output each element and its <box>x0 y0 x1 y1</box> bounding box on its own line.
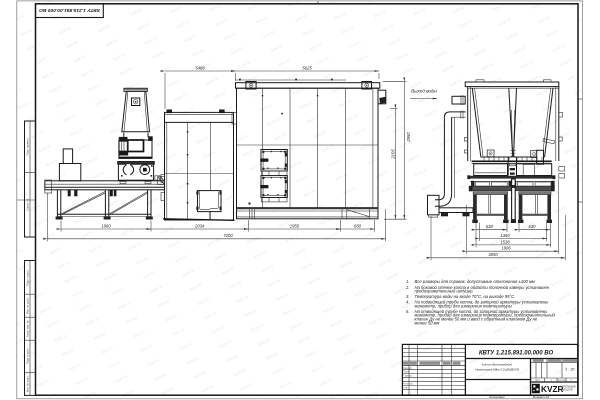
svg-text:Справ. №: Справ. № <box>25 198 29 210</box>
svg-text:Инв. № дубл.: Инв. № дубл. <box>25 297 29 314</box>
svg-text:Подп. и дата: Подп. и дата <box>25 270 29 286</box>
svg-text:Листов: Листов <box>558 379 566 382</box>
svg-text:1960: 1960 <box>101 223 111 228</box>
svg-text:Перв. примен.: Перв. примен. <box>25 138 29 156</box>
svg-text:Инв. № подл.: Инв. № подл. <box>25 375 29 392</box>
svg-text:Температура воды на входе 70°С: Температура воды на входе 70°С, на выход… <box>415 294 516 299</box>
svg-text:680: 680 <box>354 223 362 228</box>
svg-text:1.: 1. <box>406 279 410 284</box>
svg-text:манометр, прибор для измерения: манометр, прибор для измерения температу… <box>415 303 512 308</box>
svg-text:1538: 1538 <box>500 239 510 244</box>
svg-text:Взам. инв. №: Взам. инв. № <box>25 320 29 337</box>
svg-text:2105: 2105 <box>391 149 396 160</box>
svg-text:630: 630 <box>486 224 494 229</box>
svg-text:5625: 5625 <box>302 65 312 70</box>
svg-text:3050: 3050 <box>488 252 498 257</box>
svg-text:ЗАВОД РФ: ЗАВОД РФ <box>561 389 573 392</box>
svg-text:Т.контр.: Т.контр. <box>403 374 413 378</box>
svg-text:Копировал: Копировал <box>490 395 505 399</box>
svg-text:1 : 20: 1 : 20 <box>565 368 575 372</box>
svg-text:Выход воды: Выход воды <box>411 89 437 94</box>
svg-text:1360: 1360 <box>500 233 510 238</box>
svg-text:7200: 7200 <box>223 233 233 238</box>
svg-text:2034: 2034 <box>194 223 205 228</box>
svg-text:Формат А2: Формат А2 <box>533 395 550 399</box>
svg-text:630: 630 <box>529 224 537 229</box>
svg-text:Н.контр.: Н.контр. <box>403 382 413 386</box>
svg-text:предохранительный штуцер.: предохранительный штуцер. <box>415 288 474 293</box>
svg-text:1906: 1906 <box>501 246 511 251</box>
svg-text:3.: 3. <box>406 294 410 299</box>
svg-text:КВТУ 1.215.891.00.000 ВО: КВТУ 1.215.891.00.000 ВО <box>479 350 554 356</box>
svg-text:Лист: Лист <box>535 379 541 382</box>
svg-text:Новотерм1-КВм-2,5-ДО(ВОЛ): Новотерм1-КВм-2,5-ДО(ВОЛ) <box>475 368 519 372</box>
svg-text:Пров.: Пров. <box>403 370 410 374</box>
svg-text:Разраб.: Разраб. <box>403 366 413 370</box>
svg-text:Утв.: Утв. <box>403 386 408 390</box>
svg-text:Подп. и дата: Подп. и дата <box>25 348 29 364</box>
svg-text:5.: 5. <box>406 309 410 314</box>
svg-text:1950: 1950 <box>290 223 300 228</box>
svg-text:2950: 2950 <box>406 132 411 143</box>
svg-text:Котел Водогрейный: Котел Водогрейный <box>482 363 512 367</box>
svg-text:Все размеры для справок, допус: Все размеры для справок, допустимые откл… <box>415 279 535 284</box>
svg-text:менее 50 мм: менее 50 мм <box>415 320 440 325</box>
svg-text:4.: 4. <box>406 300 410 305</box>
svg-text:КВТУ 1.215.891.00.000 ВО: КВТУ 1.215.891.00.000 ВО <box>39 7 100 13</box>
svg-text:5486: 5486 <box>195 65 205 70</box>
svg-text:2.: 2. <box>405 285 410 290</box>
